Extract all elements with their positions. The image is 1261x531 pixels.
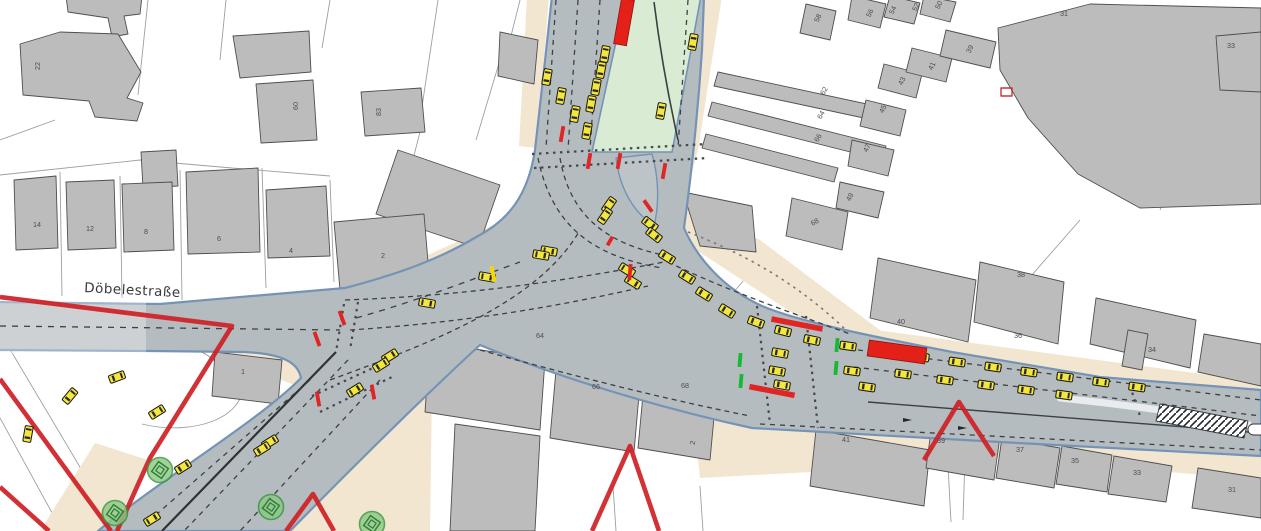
vehicle-car[interactable] [840, 341, 857, 351]
building-number-label: 8 [144, 227, 148, 236]
vehicle-car[interactable] [1057, 372, 1074, 382]
building-number-label: 35 [1071, 456, 1079, 465]
vehicle-car[interactable] [844, 366, 861, 376]
tree-icon [360, 512, 385, 531]
building-number-label: 6 [217, 234, 221, 243]
building-number-label: 60 [291, 102, 300, 110]
building-number-label: 83 [374, 108, 383, 116]
building-number-label: 36 [1014, 331, 1022, 340]
building-number-label: 33 [1133, 468, 1141, 477]
building-number-label: 22 [33, 62, 42, 70]
vehicle-car[interactable] [1018, 385, 1035, 395]
building-number-label: 39 [937, 436, 945, 445]
building-number-label: 68 [681, 381, 689, 390]
tree-icon [259, 495, 284, 520]
building-number-label: 4 [289, 246, 293, 255]
vehicle-car[interactable] [985, 362, 1002, 372]
building-number-label: 38 [1017, 270, 1025, 279]
vehicle-car[interactable] [1021, 367, 1038, 377]
vehicle-car[interactable] [978, 380, 995, 390]
building-number-label: 31 [1228, 485, 1236, 494]
vehicle-car[interactable] [1129, 382, 1146, 392]
building-number-label: 66 [592, 382, 600, 391]
vehicle-car[interactable] [859, 382, 876, 392]
building-number-label: 40 [897, 317, 905, 326]
building-number-label: 37 [1016, 445, 1024, 454]
vehicle-car[interactable] [895, 369, 912, 379]
building-number-label: 31 [1060, 9, 1068, 18]
simulation-map-canvas[interactable]: 2260831412864215856545250626466683941434… [0, 0, 1261, 531]
building-number-label: 41 [842, 435, 850, 444]
building-number-label: 33 [1227, 41, 1235, 50]
tree-icon [148, 458, 173, 483]
vehicle-car[interactable] [937, 375, 954, 385]
building-number-label: 12 [86, 224, 94, 233]
building-number-label: 1 [241, 367, 245, 376]
vehicle-car[interactable] [1056, 390, 1073, 400]
building-number-label: 2 [381, 251, 385, 260]
vehicle-car[interactable] [1093, 377, 1110, 387]
building-number-label: 14 [33, 220, 41, 229]
building-number-label: 34 [1148, 345, 1156, 354]
vehicle-car[interactable] [949, 357, 966, 367]
tree-icon [103, 501, 128, 526]
building-number-label: 64 [536, 331, 544, 340]
